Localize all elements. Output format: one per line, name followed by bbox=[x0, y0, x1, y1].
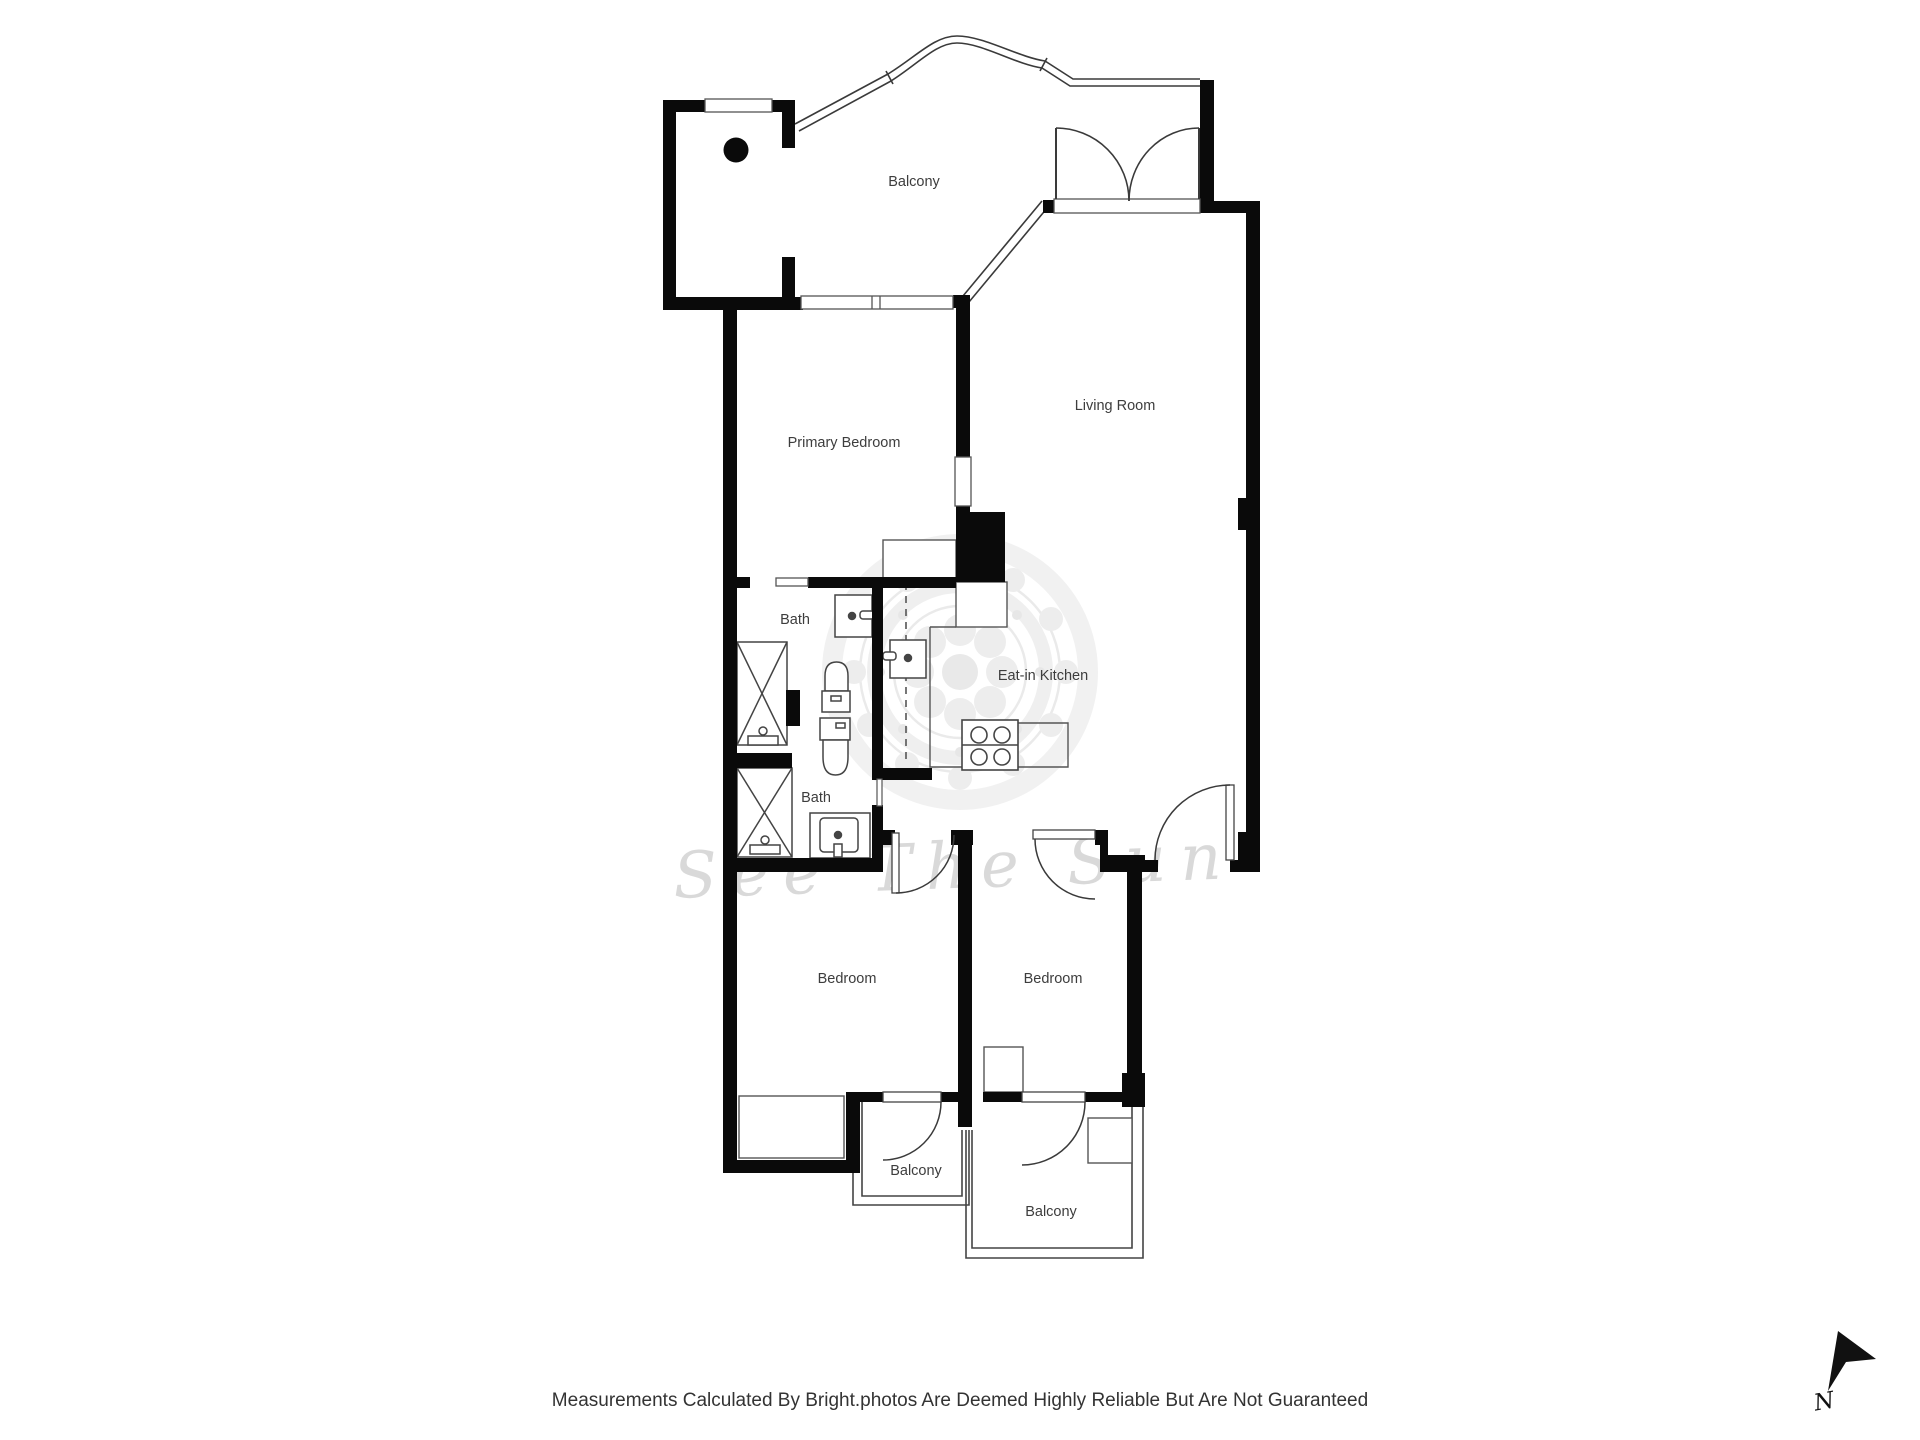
toilet-upper-icon bbox=[822, 662, 850, 712]
room-label-bath-upper: Bath bbox=[780, 612, 810, 628]
toilet-lower-icon bbox=[820, 718, 850, 775]
disclaimer-text: Measurements Calculated By Bright.photos… bbox=[552, 1390, 1368, 1411]
kitchen-sink-icon bbox=[883, 640, 926, 678]
room-label-living-room: Living Room bbox=[1075, 398, 1156, 414]
shower-upper-icon bbox=[737, 642, 787, 745]
stove-icon bbox=[962, 720, 1018, 770]
vanity-sink-upper-icon bbox=[835, 595, 874, 637]
room-label-balcony-lower-right: Balcony bbox=[1025, 1204, 1077, 1220]
room-label-eat-in-kitchen: Eat-in Kitchen bbox=[998, 668, 1088, 684]
room-label-balcony-top: Balcony bbox=[888, 174, 940, 190]
room-label-bedroom-right: Bedroom bbox=[1024, 971, 1083, 987]
room-label-bath-lower: Bath bbox=[801, 790, 831, 806]
floor-plan-svg: See The Sun bbox=[0, 0, 1920, 1440]
room-label-bedroom-left: Bedroom bbox=[818, 971, 877, 987]
column-icon bbox=[724, 138, 749, 163]
floor-plan-page: See The Sun bbox=[0, 0, 1920, 1440]
shower-lower-icon bbox=[737, 768, 792, 857]
room-label-balcony-lower-left: Balcony bbox=[890, 1163, 942, 1179]
room-label-primary-bedroom: Primary Bedroom bbox=[788, 435, 901, 451]
vanity-sink-lower-icon bbox=[810, 813, 870, 858]
